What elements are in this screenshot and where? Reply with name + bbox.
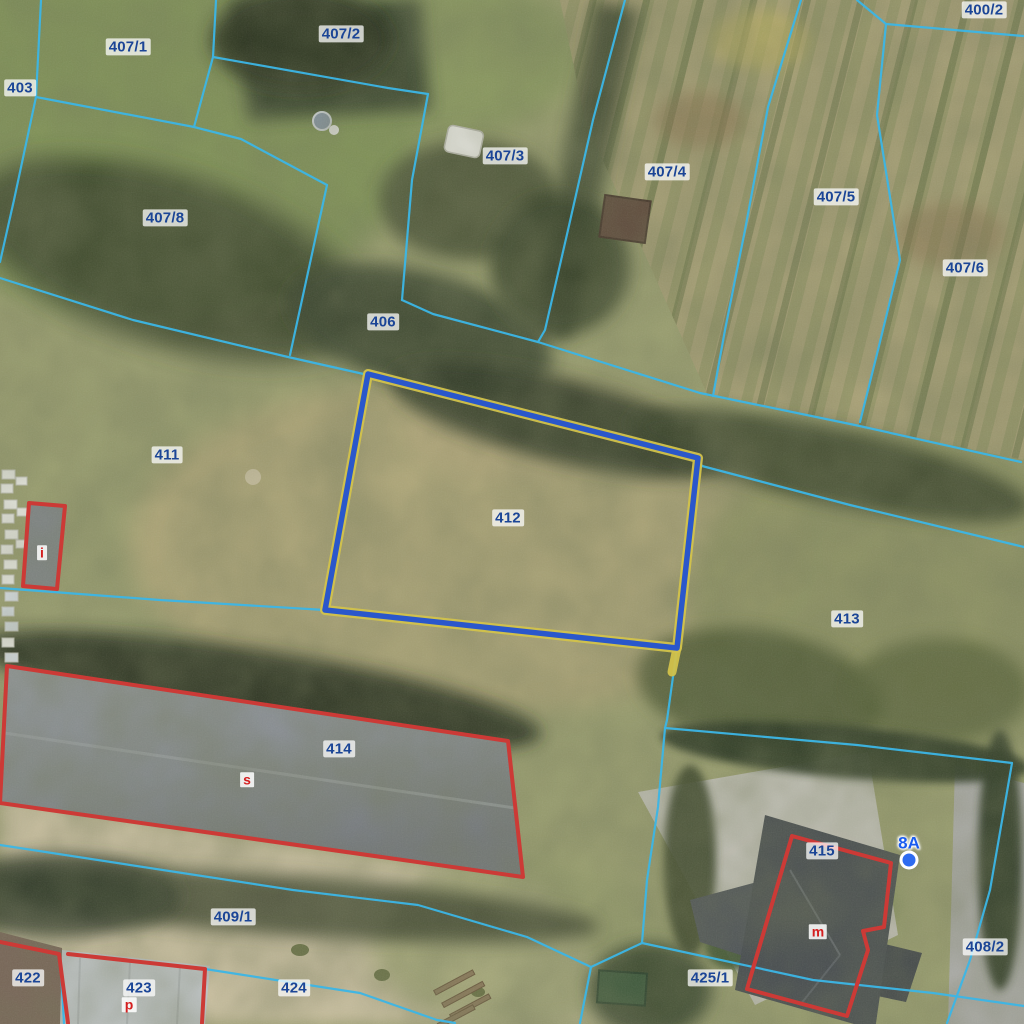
- aerial-photo: [0, 0, 1024, 1024]
- map-canvas[interactable]: 403407/1407/2400/2407/3407/4407/5407/640…: [0, 0, 1024, 1024]
- photo-grain: [0, 0, 1024, 1024]
